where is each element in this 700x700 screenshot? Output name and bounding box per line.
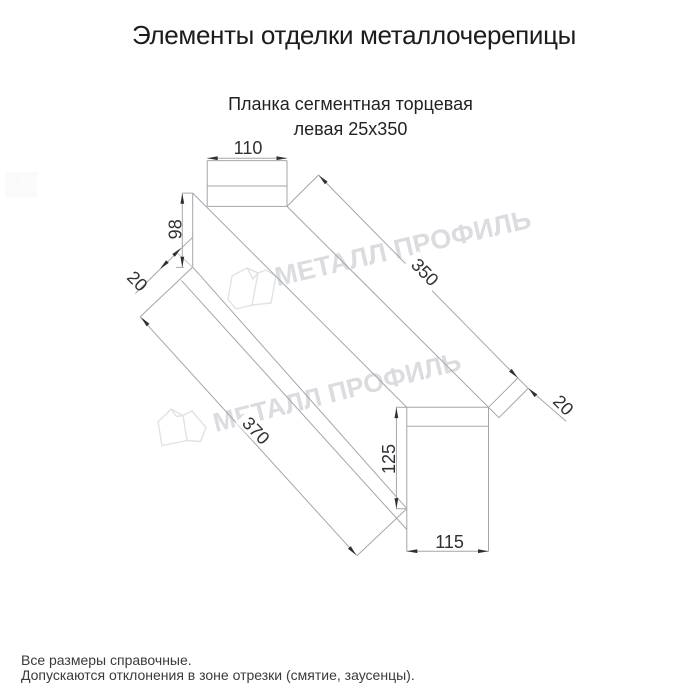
- svg-text:20: 20: [123, 267, 151, 295]
- svg-text:115: 115: [435, 532, 464, 552]
- svg-text:125: 125: [379, 444, 399, 474]
- svg-text:20: 20: [549, 391, 577, 419]
- svg-text:110: 110: [234, 138, 263, 158]
- svg-text:98: 98: [166, 219, 186, 239]
